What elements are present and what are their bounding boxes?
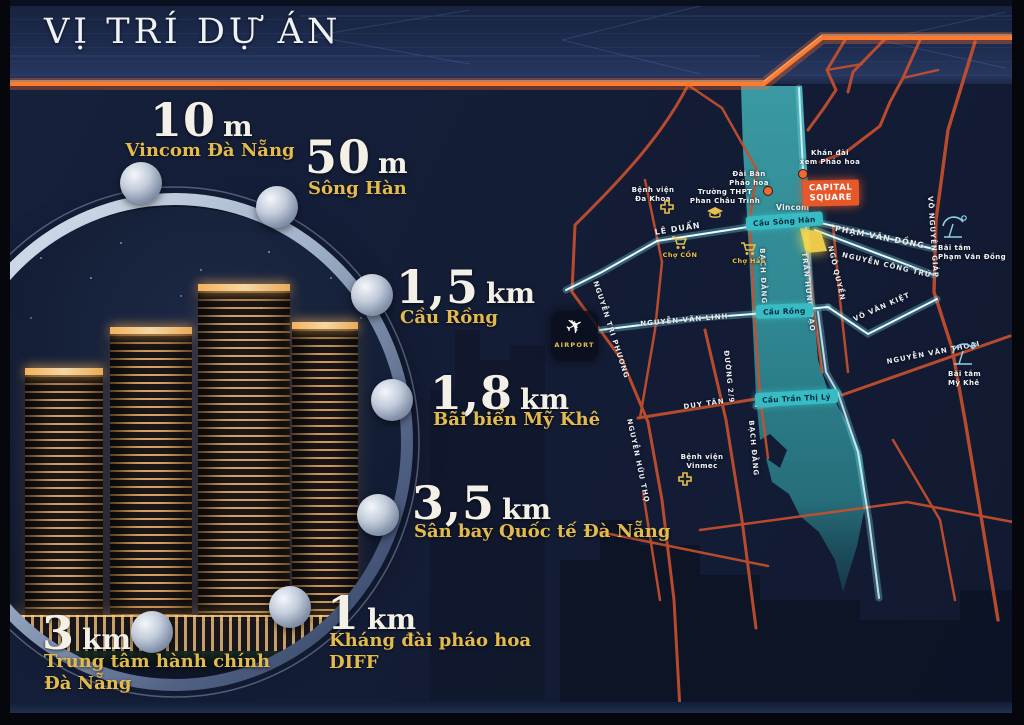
border-bottom	[0, 713, 1024, 725]
distance-label-text: Cầu Rồng	[400, 307, 498, 328]
ring-dot-cau-rong	[351, 274, 393, 316]
ring-dot-san-bay	[357, 494, 399, 536]
distance-label-text: Bãi biển Mỹ Khê	[433, 409, 600, 430]
bridge-badge-cau-rong: Cầu Rồng	[756, 303, 813, 319]
landmark-text: Phan Châu Trinh	[682, 197, 768, 206]
landmark-text: Vinmec	[674, 462, 730, 471]
distance-song-han: 50m	[305, 130, 408, 184]
graduation-cap-icon	[706, 206, 724, 220]
landmark-cho-han: Chợ Hàn	[731, 257, 767, 265]
capital-square-badge: CAPITAL SQUARE	[803, 180, 859, 207]
hospital-cross-icon	[660, 200, 674, 214]
landmark-text: Bệnh viện	[632, 186, 675, 194]
distance-label-san-bay: Sân bay Quốc tế Đà Nẵng	[414, 521, 670, 543]
landmark-cho-con: Chợ CỒN	[660, 251, 700, 259]
street-nguyen-cong-tru: NGUYỄN CÔNG TRỨ	[841, 251, 932, 279]
road-vo-nguyen-giap	[934, 42, 998, 620]
landmark-bai-tam-my-khe: Bãi tắm Mỹ Khê	[948, 370, 1008, 388]
distance-label-cau-rong: Cầu Rồng	[400, 307, 498, 329]
landmark-text: Đài Bắn	[732, 170, 765, 178]
distance-label-my-khe: Bãi biển Mỹ Khê	[433, 409, 600, 431]
landmark-benh-vien-da-khoa: Bệnh viện Đa Khoa	[615, 186, 691, 204]
landmark-text: Khán đài	[811, 149, 849, 157]
street-nguyen-huu-tho: NGUYỄN HỮU THỌ	[625, 418, 651, 504]
project-site-polygon	[800, 228, 827, 253]
road-segment	[640, 180, 662, 418]
landmark-text: Mỹ Khê	[948, 379, 1008, 388]
distance-label-text: Sông Hàn	[308, 178, 407, 199]
ring-dot-hanh-chinh	[131, 611, 173, 653]
distance-label-text: Vincom Đà Nẵng	[125, 140, 294, 161]
distance-label-text: Trung tâm hành chính	[44, 651, 270, 672]
page-title: VỊ TRÍ DỰ ÁN	[44, 12, 341, 52]
landmark-benh-vien-vinmec: Bệnh viện Vinmec	[674, 453, 730, 471]
shopping-cart-icon	[740, 242, 756, 256]
landmark-text: Bệnh viện	[681, 453, 724, 461]
street-le-duan: LÊ DUẨN	[654, 221, 701, 237]
beach-umbrella-icon	[950, 340, 978, 368]
landmark-text: Bãi tắm	[948, 370, 981, 378]
bridge-badge-tran-thi-ly: Cầu Trần Thị Lý	[755, 389, 838, 407]
ring-dot-diff	[269, 586, 311, 628]
distance-vincom: 10m	[150, 93, 253, 147]
street-duy-tan: DUY TÂN	[683, 397, 725, 411]
landmark-text: Trường THPT	[698, 188, 753, 196]
street-pham-van-dong: PHẠM VĂN ĐỒNG	[834, 224, 925, 250]
landmark-khan-dai-xem-phao-hoa: Khán đài xem Pháo hoa	[798, 149, 862, 167]
distance-value: 50	[305, 130, 371, 184]
street-vo-nguyen-giap: VÕ NGUYÊN GIÁP	[926, 196, 940, 278]
distance-label-diff: Kháng đài pháo hoa DIFF	[329, 630, 531, 674]
street-tran-hung-dao: TRẦN HƯNG ĐẠO	[800, 252, 816, 332]
distance-label-text: Sân bay Quốc tế Đà Nẵng	[414, 521, 670, 542]
border-left	[0, 0, 10, 725]
roads-orange	[572, 40, 1013, 710]
distance-label-vincom: Vincom Đà Nẵng	[118, 140, 302, 162]
distance-unit: m	[378, 147, 408, 180]
slide: VỊ TRÍ DỰ ÁN	[0, 0, 1024, 725]
distance-label-text: DIFF	[329, 652, 531, 674]
distance-label-hanh-chinh: Trung tâm hành chính Đà Nẵng	[44, 651, 270, 695]
distance-label-song-han: Sông Hàn	[308, 178, 407, 200]
tower-illustration	[198, 291, 290, 623]
distance-value: 1,5	[396, 260, 479, 314]
bridge-badge-song-han: Cầu Sông Hàn	[746, 211, 823, 230]
tower-illustration	[292, 329, 358, 623]
airport-badge: ✈ AIRPORT	[551, 311, 598, 361]
tower-illustration	[25, 375, 103, 623]
road-segment	[893, 440, 955, 600]
distance-cau-rong: 1,5km	[396, 260, 535, 314]
bottom-bar	[0, 702, 1024, 713]
border-right	[1012, 0, 1024, 725]
shopping-cart-icon	[671, 236, 687, 250]
landmark-dai-ban-phao-hoa: Đài Bắn Pháo hoa	[726, 170, 772, 188]
landmark-text: Đa Khoa	[615, 195, 691, 204]
distance-value: 10	[150, 93, 216, 147]
distance-label-text: Đà Nẵng	[44, 673, 270, 695]
hospital-cross-icon	[678, 472, 692, 486]
ring-dot-my-khe	[371, 379, 413, 421]
street-vo-van-kiet: VÕ VĂN KIỆT	[852, 291, 911, 323]
road-segment	[688, 85, 757, 170]
landmark-truong-phan-chau-trinh: Trường THPT Phan Châu Trinh	[682, 188, 768, 206]
landmark-text: Pháo hoa	[726, 179, 772, 188]
capital-line2: SQUARE	[809, 193, 853, 204]
distance-unit: km	[486, 277, 535, 310]
tower-illustration	[110, 334, 192, 623]
road-segment	[643, 492, 660, 600]
marker-khan-dai-xem-phao-hoa	[799, 170, 808, 179]
distance-unit: m	[223, 110, 253, 143]
street-bach-dang-south: BẠCH ĐẰNG	[747, 420, 760, 477]
street-duong-2-9: ĐƯỜNG 2/9	[722, 350, 736, 404]
road-segment	[700, 502, 1013, 530]
ring-dot-vincom	[120, 162, 162, 204]
landmark-text: Bãi tắm	[938, 244, 971, 252]
border-top	[0, 0, 1024, 6]
ring-dot-song-han	[256, 186, 298, 228]
landmark-text: xem Pháo hoa	[798, 158, 862, 167]
street-nguyen-van-linh: NGUYỄN VĂN LINH	[640, 312, 729, 328]
distance-label-text: Kháng đài pháo hoa	[329, 630, 531, 651]
beach-umbrella-icon	[940, 213, 968, 241]
road-nguyen-tri-phuong	[572, 85, 688, 710]
